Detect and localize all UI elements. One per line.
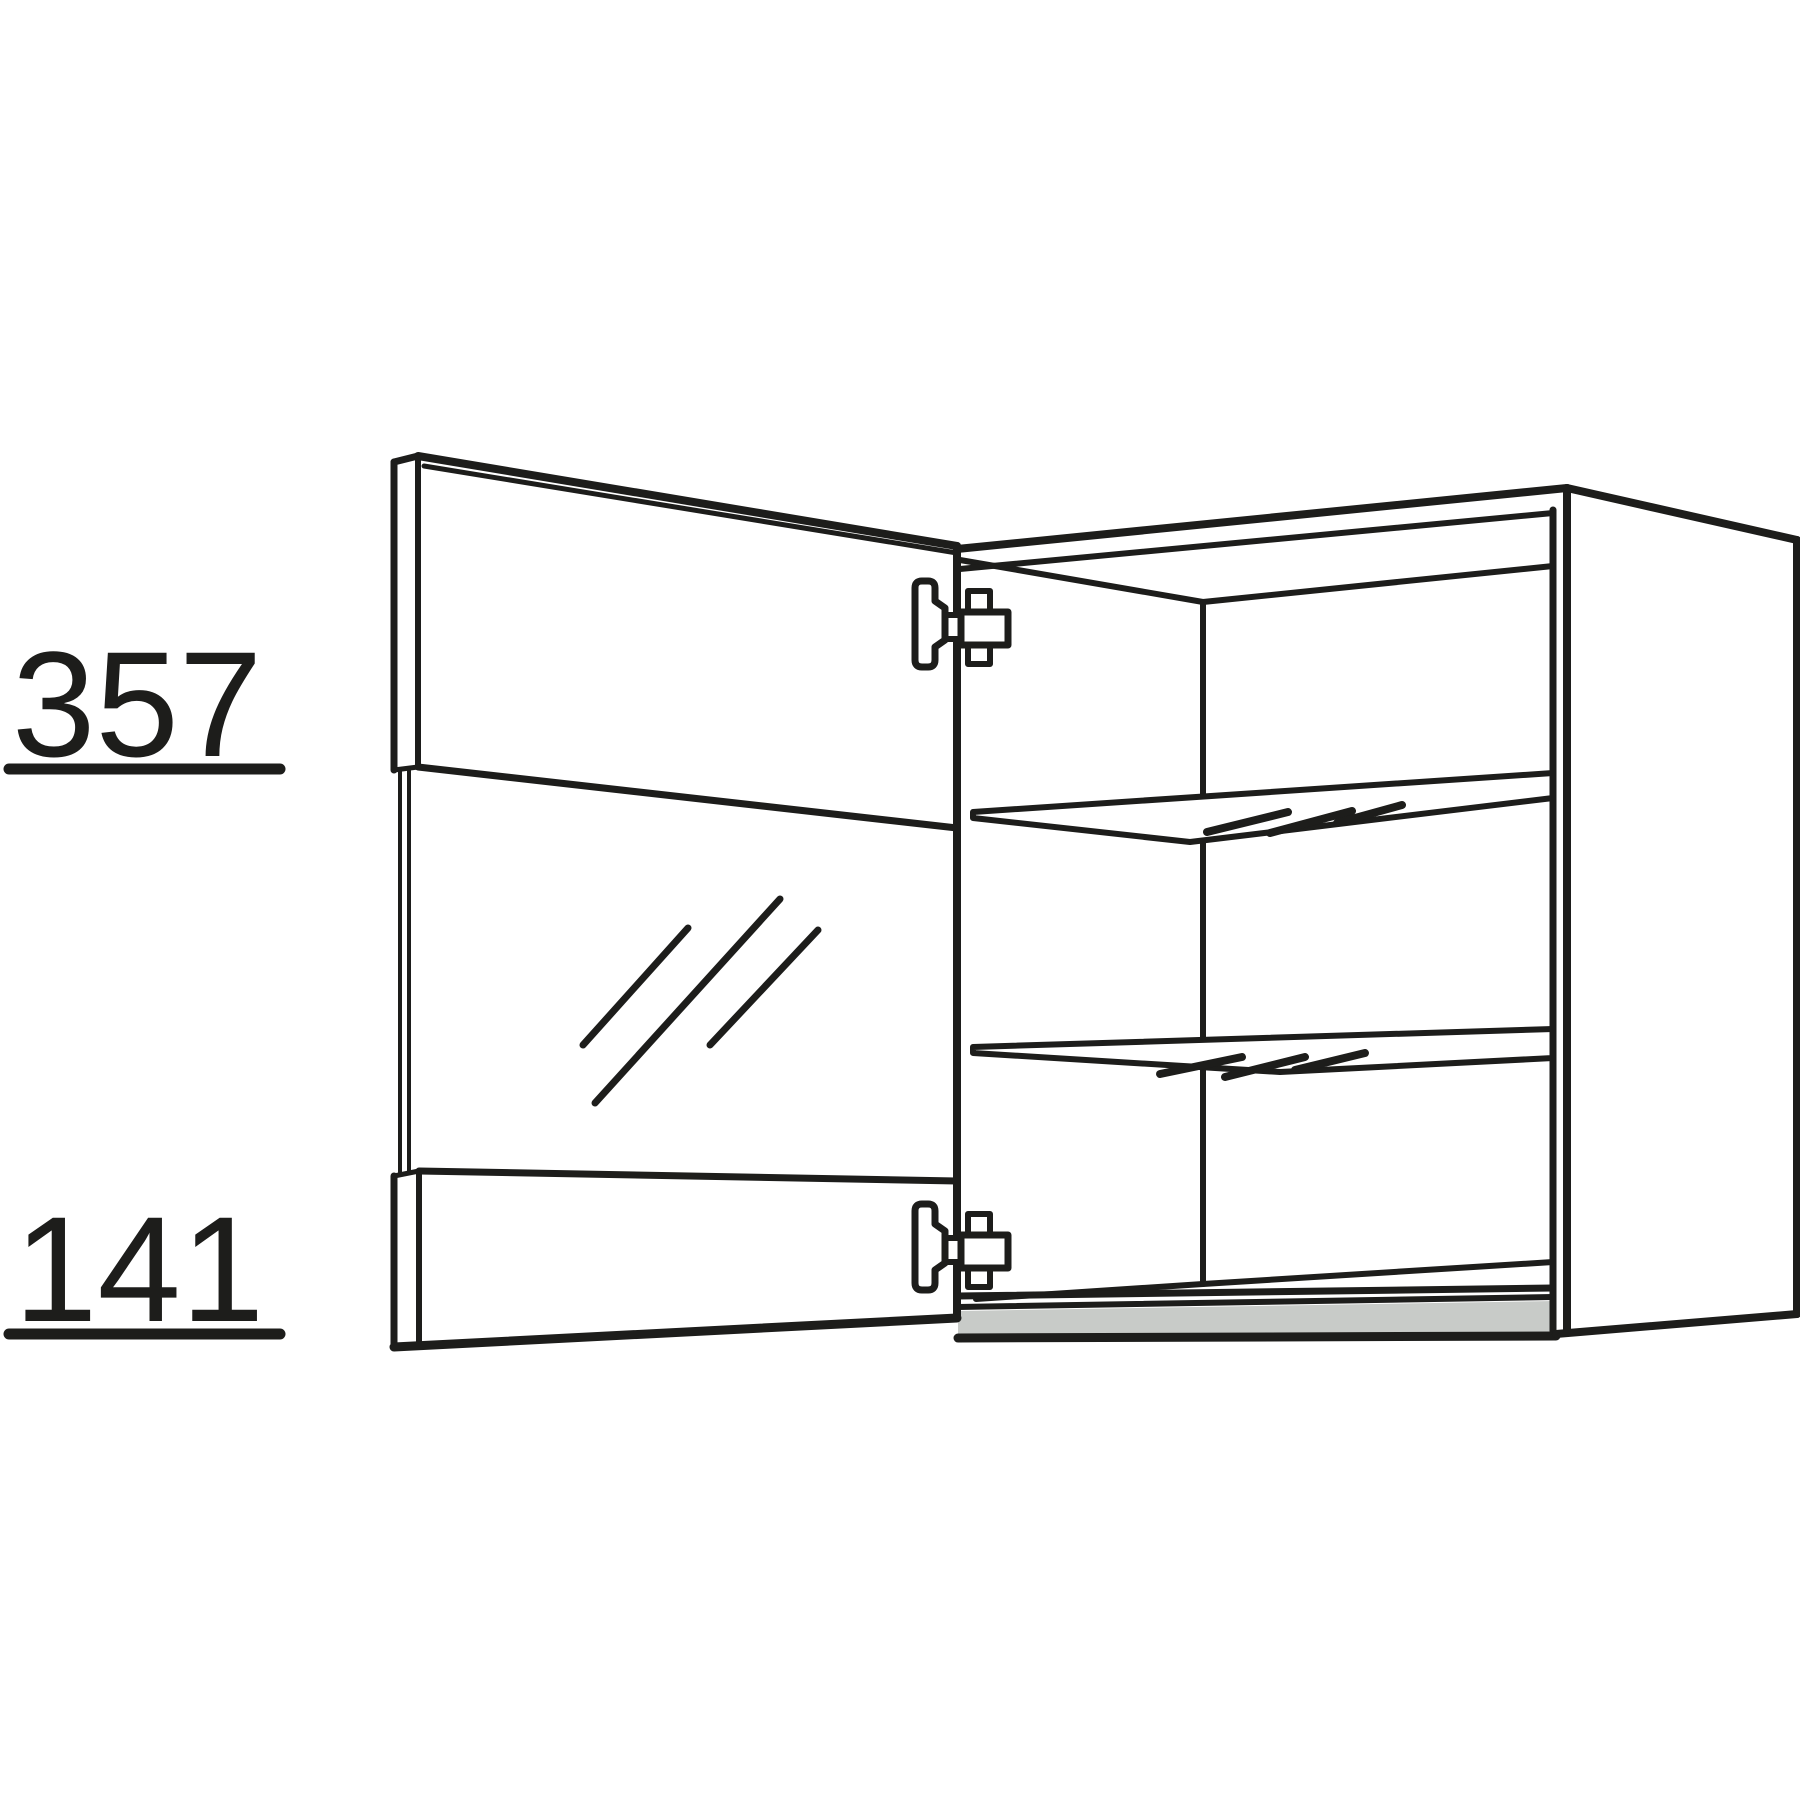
top-hinge — [915, 581, 1008, 667]
dimension-lower-label: 141 — [14, 1185, 264, 1353]
cabinet-diagram: 357 141 — [0, 0, 1800, 1800]
door-top-rail-bottom-line — [418, 767, 957, 828]
bottom-panel-front-top-edge — [958, 1288, 1553, 1296]
door-top-inner-edge — [424, 466, 957, 553]
right-panel-top-edge — [1567, 488, 1797, 540]
door-top-outer-edge — [418, 456, 957, 546]
right-side-panel — [1553, 488, 1797, 1334]
right-panel-bottom-edge — [1556, 1314, 1797, 1334]
glass-shelf-1 — [973, 773, 1553, 842]
door-top-rail-edge-cap — [394, 767, 418, 770]
door — [394, 456, 957, 1347]
bottom-hinge — [915, 1204, 1008, 1290]
door-bottom-edge — [394, 1318, 957, 1347]
dimension-upper: 357 — [9, 620, 280, 788]
dimension-lower: 141 — [9, 1185, 280, 1353]
door-glass-reflection-1 — [583, 928, 688, 1045]
glass-shelf-2 — [973, 1029, 1553, 1077]
interior-top-back-edge — [1203, 566, 1553, 602]
dimension-upper-label: 357 — [12, 620, 262, 788]
glass-shelf-1-body — [973, 773, 1553, 842]
carcass — [957, 488, 1567, 1299]
door-glass-reflection-3 — [710, 930, 818, 1045]
bottom-panel — [958, 1288, 1556, 1338]
interior-bottom-back-edge — [1203, 1262, 1553, 1284]
bottom-panel-front-bottom-edge — [958, 1336, 1556, 1338]
door-bottom-rail-edge-cap — [394, 1171, 419, 1176]
door-glass-reflection — [583, 899, 818, 1103]
cabinet-technical-drawing: 357 141 — [0, 0, 1800, 1800]
door-bottom-rail-top-line — [419, 1171, 957, 1181]
